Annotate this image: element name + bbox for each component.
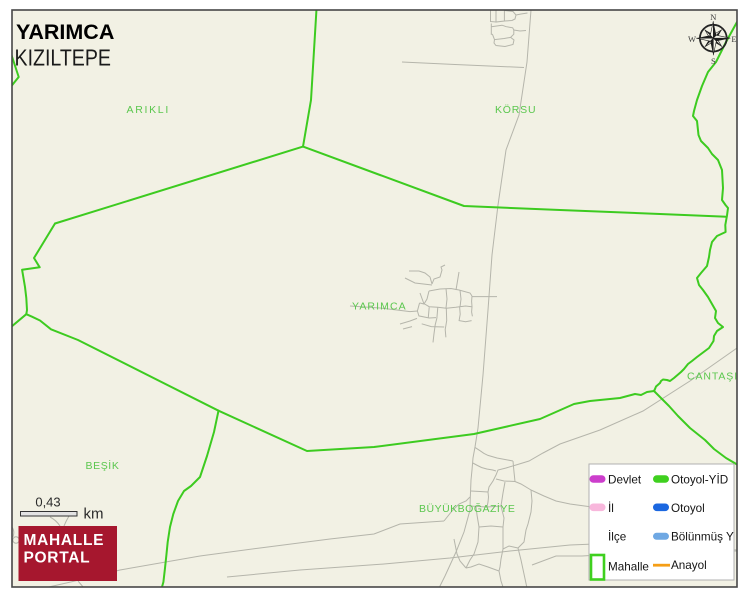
svg-text:BÜYÜKBOĞAZİYE: BÜYÜKBOĞAZİYE <box>419 502 515 515</box>
svg-text:Bölünmüş Y: Bölünmüş Y <box>671 530 734 543</box>
svg-text:0,43: 0,43 <box>35 495 60 510</box>
svg-text:İlçe: İlçe <box>608 530 626 543</box>
svg-text:ARIKLI: ARIKLI <box>127 104 170 116</box>
svg-text:E: E <box>731 34 736 44</box>
svg-text:MAHALLE: MAHALLE <box>24 532 105 549</box>
svg-text:Mahalle: Mahalle <box>608 561 649 574</box>
svg-text:N: N <box>710 12 716 22</box>
svg-text:CANTAŞI: CANTAŞI <box>687 371 738 383</box>
svg-text:Otoyol-YİD: Otoyol-YİD <box>671 474 728 487</box>
svg-text:PORTAL: PORTAL <box>24 550 91 567</box>
svg-text:Anayol: Anayol <box>671 559 707 572</box>
svg-text:YARIMCA: YARIMCA <box>16 20 114 44</box>
svg-text:S: S <box>711 56 716 66</box>
svg-text:Otoyol: Otoyol <box>671 502 705 515</box>
svg-text:YARIMCA: YARIMCA <box>352 300 407 312</box>
svg-text:KÖRSU: KÖRSU <box>495 104 536 116</box>
svg-text:W: W <box>688 34 696 44</box>
svg-text:İl: İl <box>608 502 614 515</box>
svg-text:km: km <box>84 505 104 522</box>
svg-text:KIZILTEPE: KIZILTEPE <box>15 45 112 71</box>
svg-text:Devlet: Devlet <box>608 474 642 487</box>
svg-text:BEŞİK: BEŞİK <box>86 459 120 472</box>
